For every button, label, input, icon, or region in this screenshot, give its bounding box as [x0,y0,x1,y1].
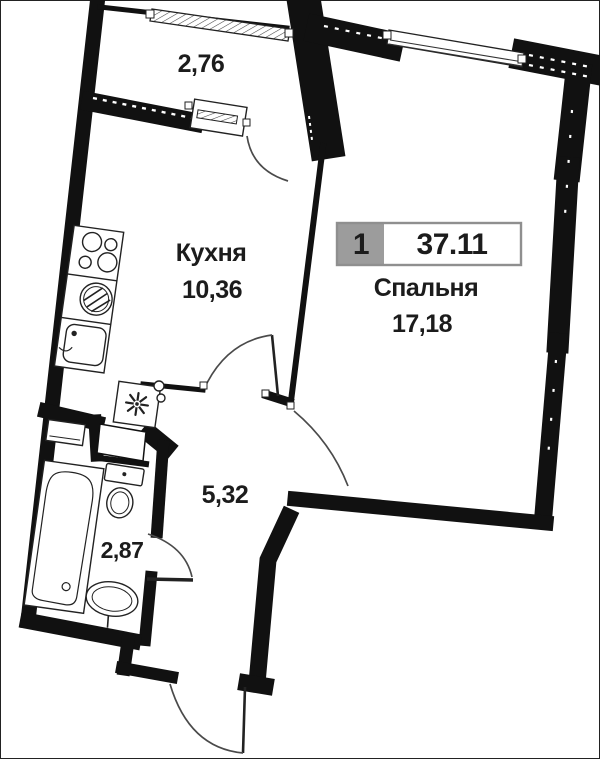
floor-plan-page: 1 37.11 2,76 Кухня 10,36 Спальня 17,18 5… [0,0,600,759]
bathroom-area-label: 2,87 [101,537,144,563]
kitchen-door-arc [205,335,272,387]
shaft-niche [97,424,146,461]
wall-hallway-left-lower [145,577,151,640]
hallway-area-label: 5,32 [202,481,249,509]
wall-right-middle [558,168,568,342]
unit-number: 1 [353,228,369,261]
wall-entrance-hinge-block [247,683,265,686]
kitchen-door-leaf [272,335,278,396]
bedroom-door-arc [294,411,348,486]
balcony-door-icon [185,99,288,181]
bedroom-window-icon [383,30,526,67]
entrance-door-arc [170,684,243,753]
wall-bedroom-bottom [295,499,546,523]
floor-plan-svg: 1 37.11 2,76 Кухня 10,36 Спальня 17,18 5… [0,0,600,759]
vent-shaft-icon [113,381,165,428]
cabinet-icon [46,420,86,446]
kitchen-name-label: Кухня [176,239,247,267]
kitchen-door-icon [200,335,278,397]
partition-kitchen-bedroom [291,146,323,401]
bedroom-door-icon [287,402,348,486]
wall-vestibule-right [257,517,288,683]
balcony-door-arc [247,136,288,181]
bedroom-name-label: Спальня [374,274,479,302]
bedroom-area-label: 17,18 [392,310,453,338]
kitchen-door-stub [267,395,289,402]
wall-right-lower [543,342,558,520]
entrance-door-icon [170,684,245,753]
wall-bathroom-bottom [28,621,133,641]
bathroom-door-leaf [147,579,193,580]
total-area: 37.11 [417,228,488,261]
toilet-icon [99,463,145,520]
wall-hallway-left-upper [157,446,163,532]
unit-badge: 1 37.11 [337,223,521,265]
wall-balcony-divider [91,102,194,122]
washbasin-icon [82,578,141,632]
balcony-area-label: 2,76 [178,50,225,78]
wall-right-upper [568,76,578,168]
entrance-door-leaf [243,687,245,753]
kitchen-area-label: 10,36 [182,276,242,304]
bathroom-door-arc [148,534,192,577]
